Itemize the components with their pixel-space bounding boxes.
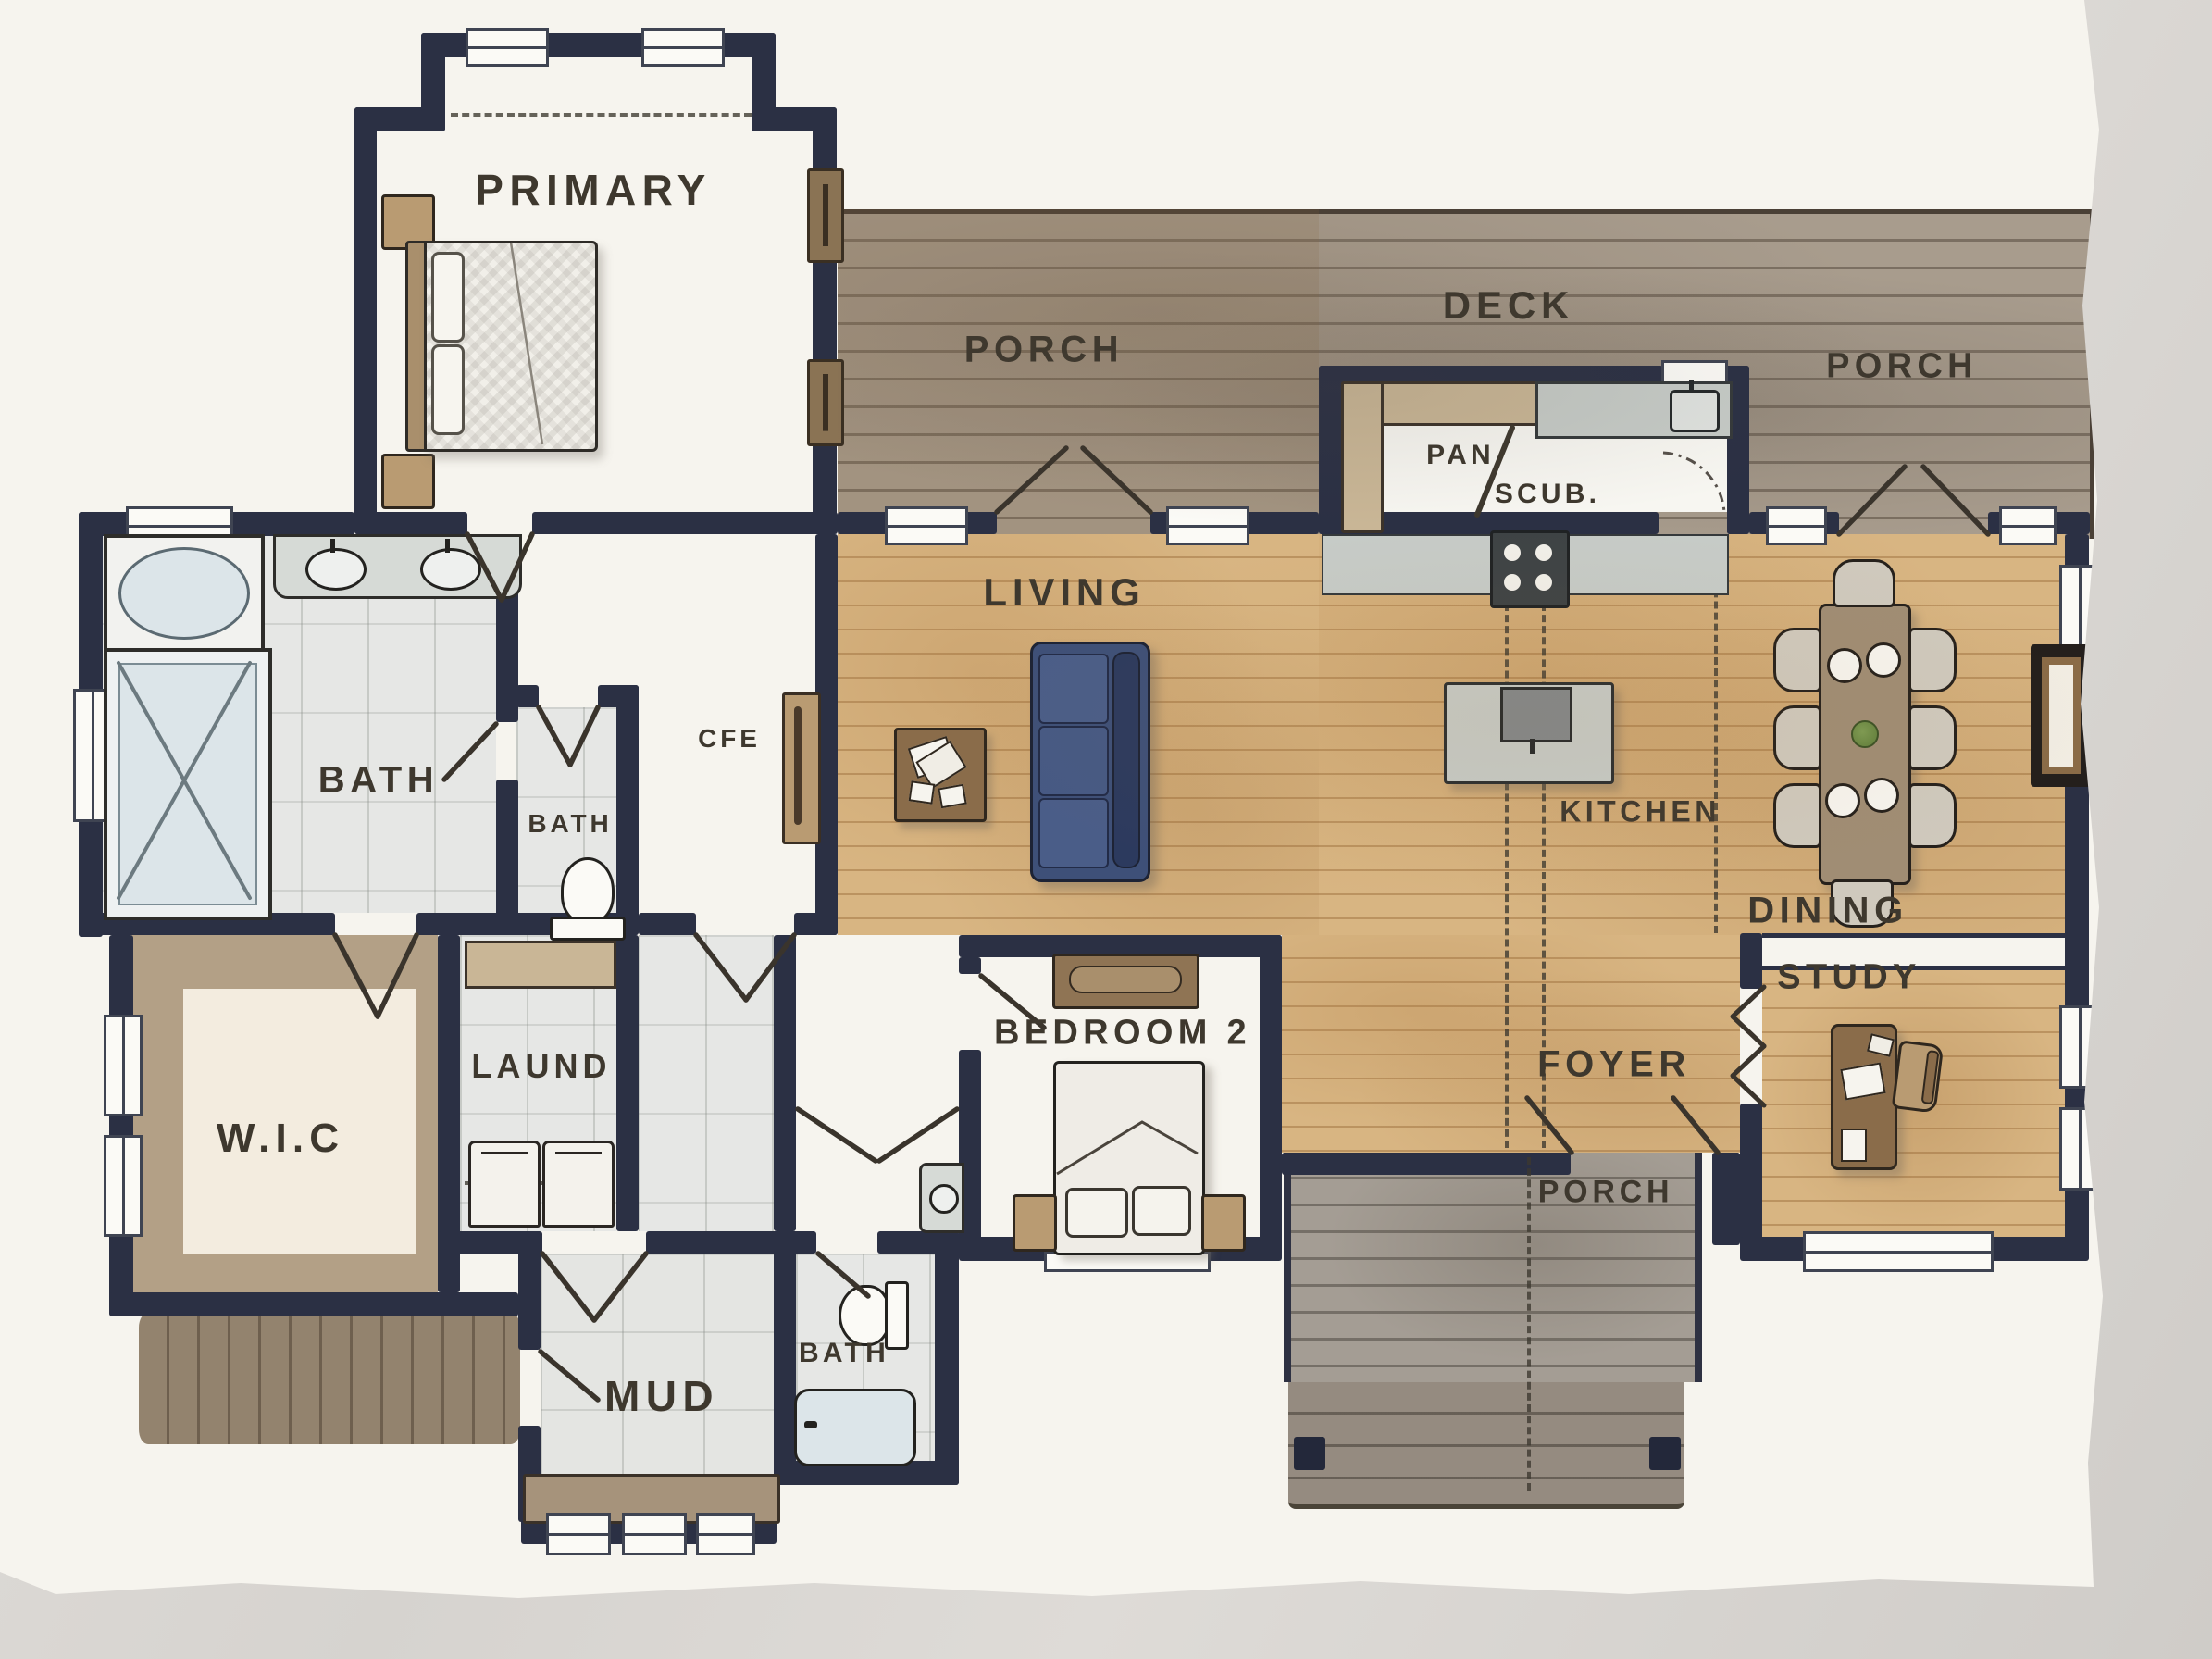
study-desk <box>1831 1024 1897 1170</box>
dryer <box>542 1141 615 1228</box>
toilet-tank <box>550 917 626 941</box>
room-label-wic: W.I.C <box>217 1116 344 1162</box>
place-setting <box>1866 642 1901 678</box>
room-label-cfe: CFE <box>698 724 761 754</box>
back-stoop <box>139 1313 520 1444</box>
wall <box>935 1231 959 1485</box>
wall <box>109 935 133 1315</box>
desk-chair <box>1892 1040 1945 1113</box>
door-leaf <box>879 1109 957 1161</box>
shower <box>104 648 272 920</box>
wall <box>516 685 539 707</box>
burner <box>1535 574 1552 591</box>
wall <box>1260 935 1282 1259</box>
nightstand <box>1013 1194 1057 1252</box>
toilet <box>561 857 615 924</box>
watercolor-paper: PRIMARY PORCH DECK PORCH PAN SCUB. LIVIN… <box>0 0 2212 1659</box>
nightstand <box>1201 1194 1246 1252</box>
room-label-mud: MUD <box>604 1371 719 1421</box>
coffee-counter <box>782 692 821 844</box>
dining-chair <box>1833 559 1895 607</box>
wall <box>109 1292 518 1316</box>
closet-dash-line <box>451 113 752 117</box>
sofa <box>1030 642 1150 882</box>
bathtub-surround <box>104 534 265 653</box>
range-cooktop <box>1490 530 1570 608</box>
bathtub <box>794 1389 916 1466</box>
scullery-counter <box>1535 381 1733 439</box>
dining-chair <box>1908 705 1957 770</box>
dresser <box>1052 954 1199 1009</box>
window <box>1766 506 1827 545</box>
window <box>696 1513 755 1555</box>
hall-vanity <box>919 1163 964 1233</box>
wall <box>1712 1153 1740 1245</box>
faucet <box>445 539 450 553</box>
window <box>466 28 549 67</box>
window-sill <box>807 359 844 446</box>
door-leaf <box>798 1109 876 1161</box>
room-label-porch-top-left: PORCH <box>964 330 1124 371</box>
window <box>546 1513 611 1555</box>
coaster <box>938 784 966 809</box>
dining-chair <box>1908 628 1957 692</box>
wall <box>774 1231 796 1485</box>
sofa-back <box>1112 652 1140 868</box>
wall <box>496 780 518 935</box>
room-label-bedroom2: BEDROOM 2 <box>994 1014 1251 1054</box>
room-label-bath-powder: BATH <box>528 809 612 839</box>
notepad <box>1841 1129 1867 1162</box>
double-vanity <box>273 534 522 599</box>
centerpiece-plant <box>1851 720 1879 748</box>
place-setting <box>1825 783 1860 818</box>
window-sill <box>807 168 844 263</box>
laptop <box>1840 1062 1885 1100</box>
wall <box>354 107 377 534</box>
wall <box>518 1231 541 1350</box>
sink <box>420 548 481 591</box>
coffee-table <box>894 728 987 822</box>
pillow <box>431 344 465 435</box>
room-label-deck: DECK <box>1443 283 1575 328</box>
washer <box>468 1141 541 1228</box>
room-label-pantry-scub: SCUB. <box>1495 479 1600 510</box>
pillow <box>1065 1188 1128 1238</box>
wall <box>2065 933 2089 961</box>
wall <box>774 935 796 1231</box>
wall <box>1319 366 1341 534</box>
burner <box>1504 544 1521 561</box>
desk-chair-back <box>1921 1050 1940 1104</box>
dining-chair <box>1773 783 1821 848</box>
porch-center-dash <box>1527 1157 1531 1491</box>
room-label-bath-primary: BATH <box>318 760 440 802</box>
pillow <box>1132 1186 1191 1236</box>
window <box>885 506 968 545</box>
room-label-living: LIVING <box>983 570 1145 615</box>
kitchen-island <box>1444 682 1614 784</box>
porch-steps <box>1288 1382 1684 1509</box>
room-label-porch-top-right: PORCH <box>1826 347 1978 387</box>
window <box>641 28 725 67</box>
sink <box>305 548 367 591</box>
room-label-laundry: LAUND <box>471 1047 611 1086</box>
sofa-cushion <box>1038 726 1109 796</box>
wall <box>354 512 467 534</box>
wall <box>1740 933 1762 989</box>
window <box>1803 1231 1994 1272</box>
dining-chair <box>1773 628 1821 692</box>
room-label-dining: DINING <box>1747 891 1908 932</box>
window <box>622 1513 687 1555</box>
hall-vestibule <box>639 935 774 1231</box>
sink <box>929 1184 959 1214</box>
burner <box>1535 544 1552 561</box>
window <box>104 1015 143 1116</box>
room-label-pantry-pan: PAN <box>1426 440 1495 471</box>
wall <box>1740 1104 1762 1259</box>
dining-chair <box>1908 783 1957 848</box>
room-label-primary: PRIMARY <box>475 165 712 215</box>
wall <box>639 913 696 935</box>
faucet <box>1530 739 1535 754</box>
porch-post <box>1649 1437 1681 1470</box>
wall <box>532 512 838 534</box>
island-sink <box>1500 687 1572 742</box>
room-mud <box>541 1254 774 1474</box>
dresser-top <box>1069 966 1182 993</box>
wall <box>774 1231 816 1254</box>
tub-faucet <box>804 1421 817 1428</box>
room-label-bath-hall: BATH <box>799 1338 889 1369</box>
burner <box>1504 574 1521 591</box>
firebox <box>2049 665 2073 767</box>
coffee-counter-line <box>794 706 802 825</box>
porch-post <box>1294 1437 1325 1470</box>
sofa-cushion <box>1038 798 1109 868</box>
laundry-counter <box>465 941 616 989</box>
shower-pan <box>118 663 257 905</box>
bathtub <box>118 547 250 640</box>
window <box>104 1135 143 1237</box>
pantry-counter <box>1341 381 1384 533</box>
room-label-foyer: FOYER <box>1537 1044 1691 1086</box>
faucet <box>330 539 335 553</box>
room-label-study: STUDY <box>1777 958 1920 998</box>
scullery-sink <box>1670 390 1720 432</box>
wall <box>959 957 981 974</box>
room-label-porch-front: PORCH <box>1538 1175 1674 1211</box>
nightstand <box>381 454 435 509</box>
window <box>1166 506 1249 545</box>
dining-chair <box>1773 705 1821 770</box>
room-porch-top-left <box>838 209 1319 534</box>
sofa-cushion <box>1038 654 1109 724</box>
pillow <box>431 252 465 343</box>
window <box>1999 506 2057 545</box>
desk-papers <box>1867 1033 1895 1057</box>
wall <box>616 685 639 935</box>
place-setting <box>1864 778 1899 813</box>
wall <box>616 935 639 1231</box>
room-label-kitchen: KITCHEN <box>1560 795 1721 829</box>
faucet <box>1689 380 1694 393</box>
place-setting <box>1827 648 1862 683</box>
coaster <box>909 780 936 804</box>
bedroom2-bed <box>1053 1061 1205 1255</box>
